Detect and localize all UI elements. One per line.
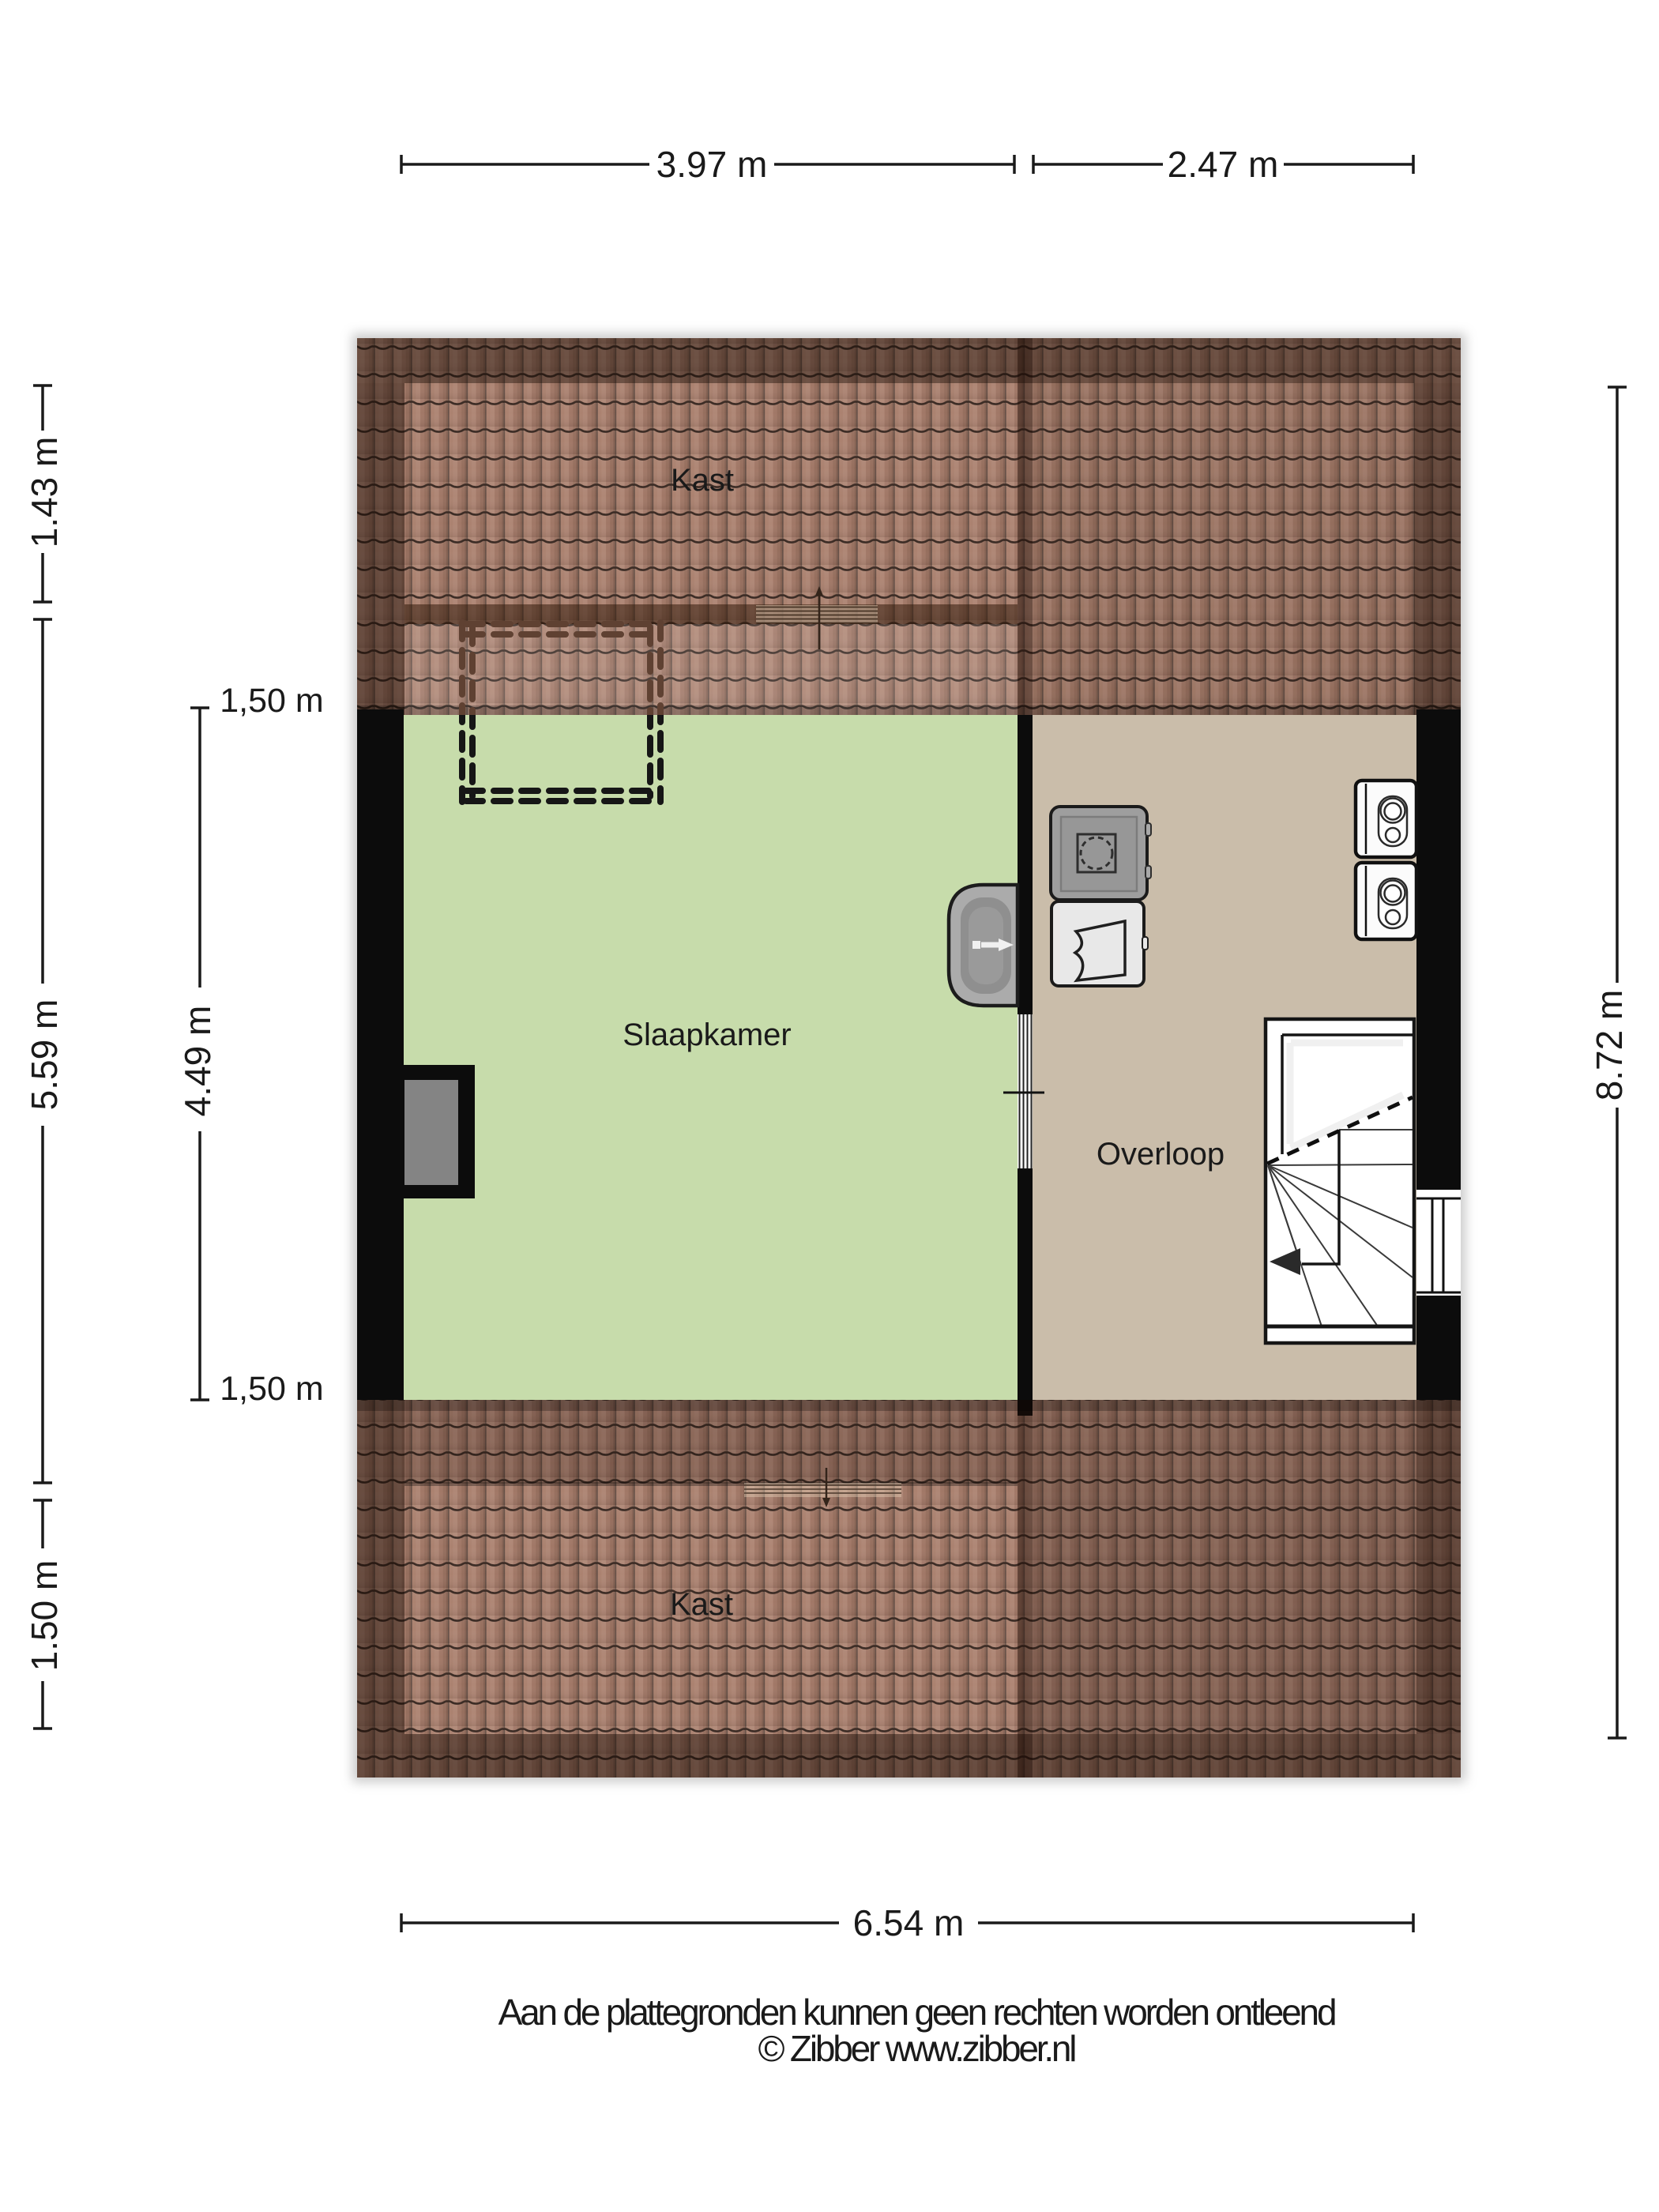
svg-text:1,50 m: 1,50 m	[220, 1370, 323, 1408]
svg-text:6.54 m: 6.54 m	[853, 1902, 965, 1943]
svg-text:2.47 m: 2.47 m	[1168, 144, 1279, 185]
svg-text:Slaapkamer: Slaapkamer	[623, 1018, 791, 1052]
svg-text:© Zibber www.zibber.nl: © Zibber www.zibber.nl	[758, 2028, 1076, 2069]
svg-text:Aan de plattegronden kunnen ge: Aan de plattegronden kunnen geen rechten…	[498, 1992, 1335, 2033]
svg-text:3.97 m: 3.97 m	[656, 144, 768, 185]
svg-text:5.59 m: 5.59 m	[24, 999, 65, 1111]
svg-text:1.43 m: 1.43 m	[24, 437, 65, 548]
svg-text:Kast: Kast	[671, 463, 734, 498]
svg-text:1.50 m: 1.50 m	[24, 1560, 65, 1672]
svg-text:Overloop: Overloop	[1097, 1137, 1224, 1172]
svg-text:1,50 m: 1,50 m	[220, 682, 323, 720]
svg-text:8.72 m: 8.72 m	[1589, 990, 1630, 1101]
svg-text:4.49 m: 4.49 m	[177, 1006, 218, 1117]
svg-text:Kast: Kast	[670, 1587, 733, 1622]
